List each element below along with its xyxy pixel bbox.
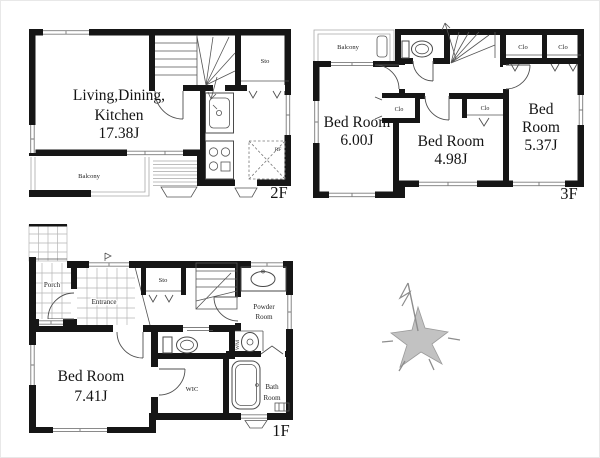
toilet-1f: [163, 337, 198, 353]
powder-room-1f: Powder Room: [241, 267, 286, 321]
room-label-bed3-line1: Bed: [529, 101, 554, 118]
floor-plan-2f: Balcony Sto: [29, 29, 291, 202]
window-3f-bed2-bottom: [419, 181, 477, 188]
floor-plan-3f: Balcony Clo Cl: [313, 23, 584, 203]
room-label-bed1-line2: 6.00J: [340, 132, 373, 149]
porch-1f: Porch: [32, 263, 71, 319]
window-3f-balcony-door: [331, 61, 373, 67]
room-label-bed3-line2: Room: [522, 119, 560, 136]
window-3f-bed3-bottom: [513, 181, 565, 188]
north-compass: [382, 283, 460, 371]
bath-room-label-line2: Room: [263, 394, 281, 402]
roof-hatch-2f: [153, 161, 201, 197]
balcony-2f-label: Balcony: [78, 173, 100, 180]
window-2f-right: [285, 95, 292, 135]
room-label-bed3-line3: 5.37J: [524, 137, 557, 154]
room-label-ldk-line3: 17.38J: [99, 125, 140, 142]
door-bed1-3f: [375, 65, 399, 89]
room-label-ldk-line1: Living,Dining,: [73, 87, 165, 104]
window-1f-bedroom-bottom: [53, 427, 107, 433]
door-bed3-3f: [506, 65, 530, 89]
closet1-label: Clo: [518, 44, 527, 51]
balcony-3f: Balcony: [314, 30, 394, 61]
entrance-label: Entrance: [92, 298, 117, 306]
bath-room-label-line1: Bath: [265, 383, 279, 391]
floor-plan-1f: Porch Entrance: [29, 224, 293, 440]
room-label-bed1-line1: Bed Room: [324, 114, 391, 131]
window-3f-bed1-bottom: [329, 192, 375, 199]
powder-room-label-line1: Powder: [253, 303, 275, 311]
door-wic-1f: [159, 369, 185, 395]
storage-1f-label: Sto: [159, 277, 168, 284]
door-bed2-3f: [425, 96, 449, 120]
balcony-2f: Balcony: [29, 157, 149, 197]
powder-room-label-line2: Room: [255, 313, 273, 321]
compass-star: [391, 307, 448, 367]
entrance-1f: Entrance: [77, 267, 150, 325]
window-1f-left-bedroom: [29, 345, 36, 385]
window-1f-top-powder: [251, 261, 283, 268]
wall-kitchen-2f: [200, 91, 206, 180]
wall-stairs-left-2f: [149, 35, 155, 91]
room-label-ldk-line2: Kitchen: [94, 107, 143, 124]
window-3f-bed3-right: [578, 95, 585, 125]
refrigerator-label: RF: [275, 147, 282, 153]
room-label-bedroom-1f-line2: 7.41J: [74, 388, 107, 405]
window-1f-porch-bottom: [39, 319, 63, 326]
floor-label-1f: 1F: [272, 421, 289, 440]
window-2f-top: [43, 29, 89, 36]
toilet-3f: [402, 41, 433, 58]
stairs-1f: [196, 263, 237, 309]
room-label-bedroom-1f-line1: Bed Room: [58, 368, 125, 385]
closet2-label: Clo: [558, 44, 567, 51]
floorplan-canvas: Balcony Sto: [1, 1, 600, 458]
window-3f-bed1-left: [313, 101, 320, 143]
porch-label: Porch: [44, 281, 61, 289]
storage-1f: Sto: [146, 277, 181, 302]
window-2f-balcony-door: [127, 150, 183, 157]
door-2f-kitchen-bottom: [235, 180, 257, 198]
window-1f-top-entrance: [89, 261, 129, 268]
wic-label: WIC: [186, 386, 199, 393]
window-1f-right-powder: [286, 295, 293, 329]
room-label-bed2-line1: Bed Room: [418, 133, 485, 150]
floor-label-2f: 2F: [270, 183, 287, 202]
floor-label-3f: 3F: [560, 184, 577, 203]
window-2f-left: [29, 125, 36, 153]
refrigerator-space-2f: RF: [249, 141, 285, 179]
kitchen-sink-2f: [206, 93, 234, 133]
storage-2f-label: Sto: [261, 58, 270, 65]
kitchen-stove-2f: [206, 141, 234, 179]
window-1f-bath-bottom: [241, 413, 267, 428]
compass-needle: [408, 283, 418, 331]
storage-2f: Sto: [241, 58, 289, 98]
approach-tiles-1f: [29, 224, 67, 261]
door-toilet-1f: [183, 328, 213, 331]
door-bedroom-1f: [117, 332, 143, 358]
closet4-label: Clo: [481, 106, 490, 112]
room-label-bed2-line2: 4.98J: [434, 151, 467, 168]
washer-label: WM: [235, 340, 241, 350]
closet3-label: Clo: [395, 107, 404, 113]
wall-sto-left-2f: [235, 29, 241, 91]
balcony-3f-label: Balcony: [337, 44, 359, 51]
floorplan-image: Balcony Sto: [0, 0, 600, 458]
washer-space-1f: WM: [235, 333, 259, 352]
